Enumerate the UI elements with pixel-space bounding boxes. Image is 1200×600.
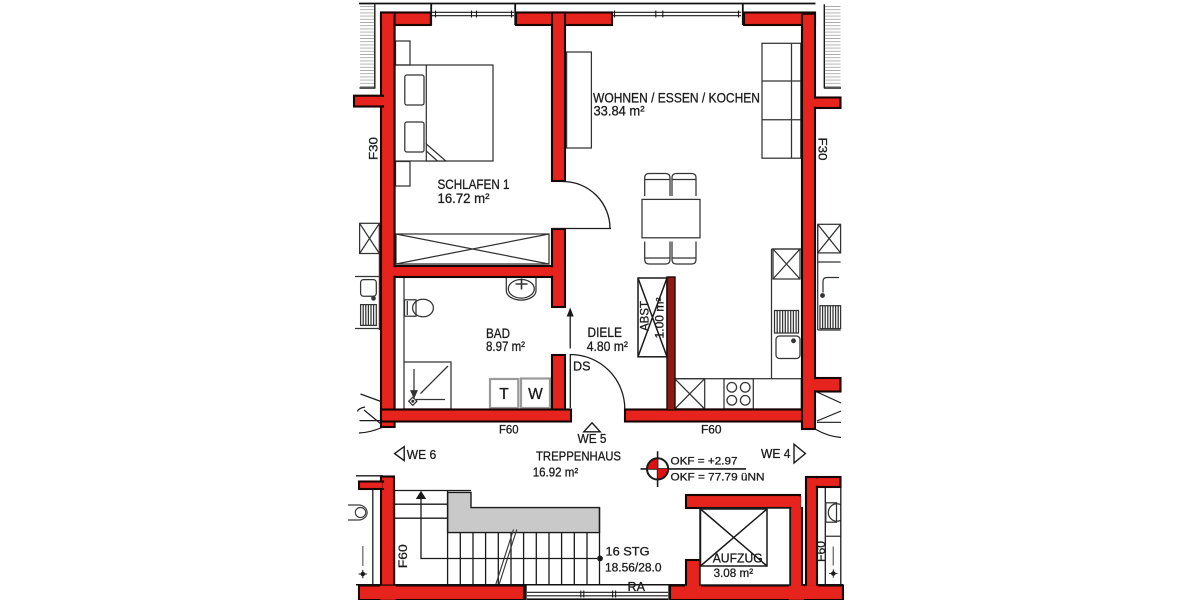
svg-text:3.08 m²: 3.08 m² (714, 566, 754, 580)
svg-text:SCHLAFEN 1: SCHLAFEN 1 (438, 177, 510, 192)
svg-text:16.92 m²: 16.92 m² (533, 464, 579, 479)
svg-text:8.97 m²: 8.97 m² (486, 339, 525, 354)
svg-text:TREPPENHAUS: TREPPENHAUS (536, 449, 621, 464)
svg-text:WE 6: WE 6 (407, 447, 437, 462)
svg-text:33.84 m²: 33.84 m² (594, 104, 645, 119)
svg-text:18.56/28.0: 18.56/28.0 (605, 560, 662, 574)
svg-text:F60: F60 (814, 541, 828, 562)
svg-text:F30: F30 (367, 137, 381, 160)
svg-text:F30: F30 (815, 138, 829, 161)
svg-text:AUFZUG: AUFZUG (713, 551, 763, 566)
svg-text:1.00 m²: 1.00 m² (654, 297, 667, 338)
svg-text:F60: F60 (499, 423, 519, 437)
svg-text:4.80 m²: 4.80 m² (587, 339, 629, 354)
svg-text:OKF = +2.97: OKF = +2.97 (671, 455, 738, 467)
svg-text:RA: RA (628, 579, 646, 594)
svg-text:F60: F60 (396, 544, 410, 568)
svg-text:T: T (499, 386, 509, 403)
svg-text:DS: DS (573, 359, 591, 374)
svg-text:OKF = 77.79 üNN: OKF = 77.79 üNN (671, 471, 765, 483)
svg-text:16.72 m²: 16.72 m² (438, 191, 490, 206)
svg-text:WE 4: WE 4 (761, 446, 791, 461)
svg-text:W: W (528, 386, 543, 403)
svg-text:16 STG: 16 STG (606, 544, 650, 558)
svg-text:F60: F60 (701, 423, 722, 437)
svg-text:WE 5: WE 5 (578, 431, 607, 446)
svg-text:DIELE: DIELE (588, 325, 623, 340)
svg-text:ABST: ABST (639, 301, 652, 331)
